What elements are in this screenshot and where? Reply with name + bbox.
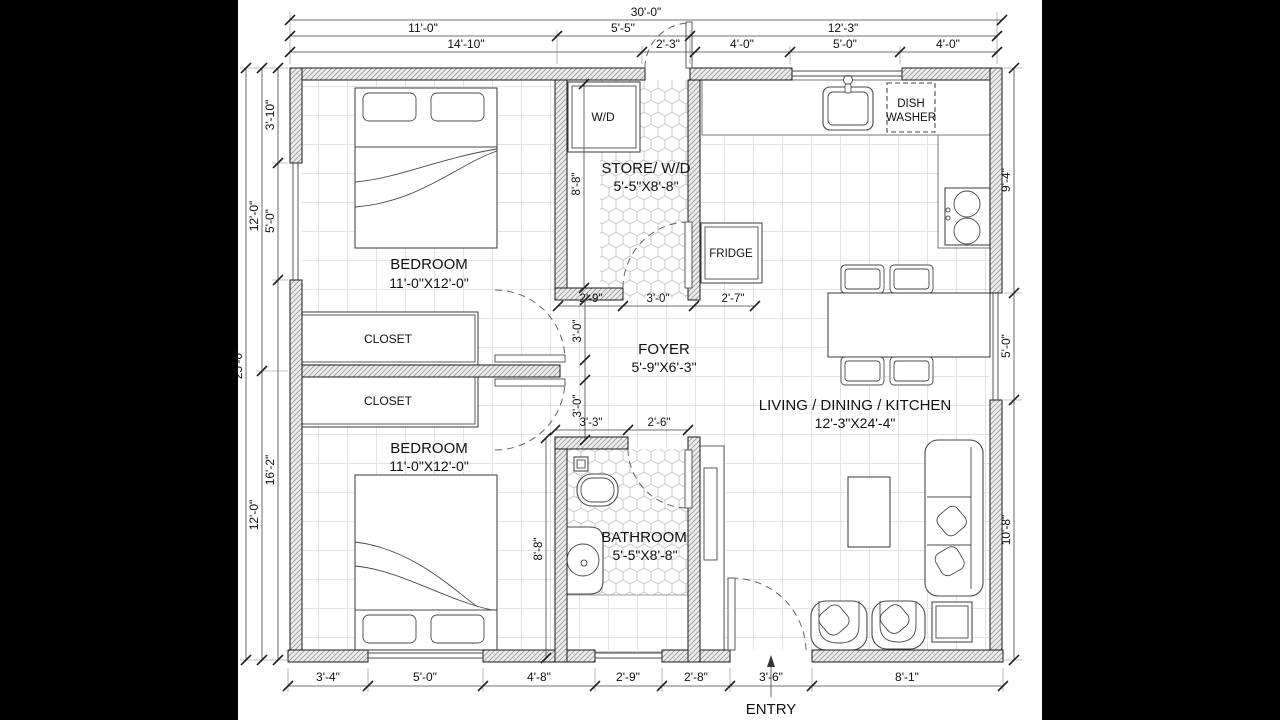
- bed-top: [355, 88, 497, 248]
- dim-bottom-0: 3'-4": [316, 670, 340, 684]
- dim-right-2: 10'-8": [999, 515, 1013, 546]
- store-name: STORE/ W/D: [602, 160, 691, 177]
- sofa: [925, 440, 983, 596]
- tall-cabinet: [700, 446, 724, 656]
- floor-plan-screenshot: CLOSET CLOSET W/D FRIDGE DISH WASHER: [0, 0, 1280, 720]
- closet-bottom: CLOSET: [298, 374, 478, 427]
- dim-foyer-door-bottom: 3'-0": [572, 395, 584, 418]
- dim-left-overall: 25'-0": [231, 349, 245, 380]
- dishwasher-label-line2: WASHER: [886, 112, 936, 124]
- side-table: [932, 602, 972, 642]
- coffee-table: [848, 477, 890, 547]
- dim-bottom-3: 2'-9": [616, 670, 640, 684]
- armchair-right: [872, 601, 925, 649]
- dim-bottom-6: 8'-1": [895, 670, 919, 684]
- stove: [945, 188, 990, 245]
- store-size: 5'-5"X8'-8": [613, 178, 678, 194]
- dim-top-row3-4: 4'-0": [936, 37, 960, 51]
- bedroom-bottom-door-leaf: [495, 379, 565, 386]
- dim-store-bottom-1: 3'-0": [647, 293, 670, 305]
- dim-top-overall: 30'-0": [631, 5, 662, 19]
- armchair-left: [811, 601, 867, 650]
- closet-bottom-label: CLOSET: [364, 394, 413, 408]
- dim-store-height: 8'-8": [571, 173, 583, 196]
- bedroom-top-size: 11'-0"X12'-0": [389, 275, 469, 291]
- bathroom-size: 5'-5"X8'-8": [612, 547, 677, 563]
- bedroom-top-door-leaf: [495, 355, 565, 362]
- rear-door-leaf: [686, 22, 692, 68]
- dim-top-row2-0: 11'-0": [408, 21, 438, 35]
- fridge-label: FRIDGE: [709, 248, 753, 260]
- dim-right-0: 9'-4": [999, 168, 1013, 192]
- foyer-name: FOYER: [638, 341, 690, 358]
- dim-top-row3-0: 14'-10": [447, 37, 484, 51]
- floor-plan-canvas: CLOSET CLOSET W/D FRIDGE DISH WASHER: [0, 0, 1280, 720]
- dim-store-bottom-0: 2'-9": [580, 293, 603, 305]
- vanity-sink: [566, 527, 603, 594]
- dim-left-row2-0: 12'-0": [247, 201, 261, 232]
- foyer-size: 5'-9"X6'-3": [631, 359, 696, 375]
- dim-top-row2-2: 12'-3": [828, 21, 859, 35]
- bathroom-door-leaf: [685, 450, 692, 508]
- living-size: 12'-3"X24'-4": [815, 415, 896, 431]
- dishwasher-label-line1: DISH: [897, 98, 924, 110]
- dim-left-row3-1: 5'-0": [263, 209, 277, 233]
- dim-top-row3-2: 4'-0": [730, 37, 754, 51]
- bedroom-bottom-size: 11'-0"X12'-0": [389, 458, 469, 474]
- dim-left-row3-0: 3'-10": [263, 100, 277, 131]
- washer-dryer-unit: W/D: [568, 82, 640, 152]
- dim-top-row2-1: 5'-5": [611, 21, 635, 35]
- entry-door-leaf: [728, 578, 735, 650]
- washer-dryer-label: W/D: [591, 110, 615, 124]
- entry-label: ENTRY: [746, 701, 797, 718]
- bed-bottom: [355, 475, 497, 650]
- dim-top-row3-1: 2'-3": [656, 37, 680, 51]
- dim-bath-height: 8'-8": [533, 538, 545, 561]
- dim-bottom-4: 2'-8": [684, 670, 708, 684]
- bedroom-top-name: BEDROOM: [390, 256, 468, 273]
- dim-top-row3-3: 5'-0": [833, 37, 857, 51]
- closet-top: CLOSET: [298, 312, 478, 365]
- closet-top-label: CLOSET: [364, 332, 413, 346]
- dim-left-row2-1: 12'-0": [247, 500, 261, 531]
- dim-store-bottom-2: 2'-7": [722, 293, 745, 305]
- dim-bottom-1: 5'-0": [413, 670, 437, 684]
- dim-bottom-2: 4'-8": [527, 670, 551, 684]
- dishwasher: DISH WASHER: [886, 83, 936, 132]
- bathroom-name: BATHROOM: [601, 529, 687, 546]
- dim-left-row3-2: 16'-2": [263, 455, 277, 486]
- dim-right-1: 5'-0": [999, 334, 1013, 358]
- fridge: FRIDGE: [701, 223, 762, 283]
- bedroom-bottom-name: BEDROOM: [390, 440, 468, 457]
- store-door-leaf: [685, 222, 692, 288]
- dim-bath-top-1: 2'-6": [648, 417, 671, 429]
- dim-foyer-door-top: 3'-0": [572, 320, 584, 343]
- dim-bath-top-0: 3'-3": [580, 417, 603, 429]
- living-name: LIVING / DINING / KITCHEN: [759, 397, 952, 414]
